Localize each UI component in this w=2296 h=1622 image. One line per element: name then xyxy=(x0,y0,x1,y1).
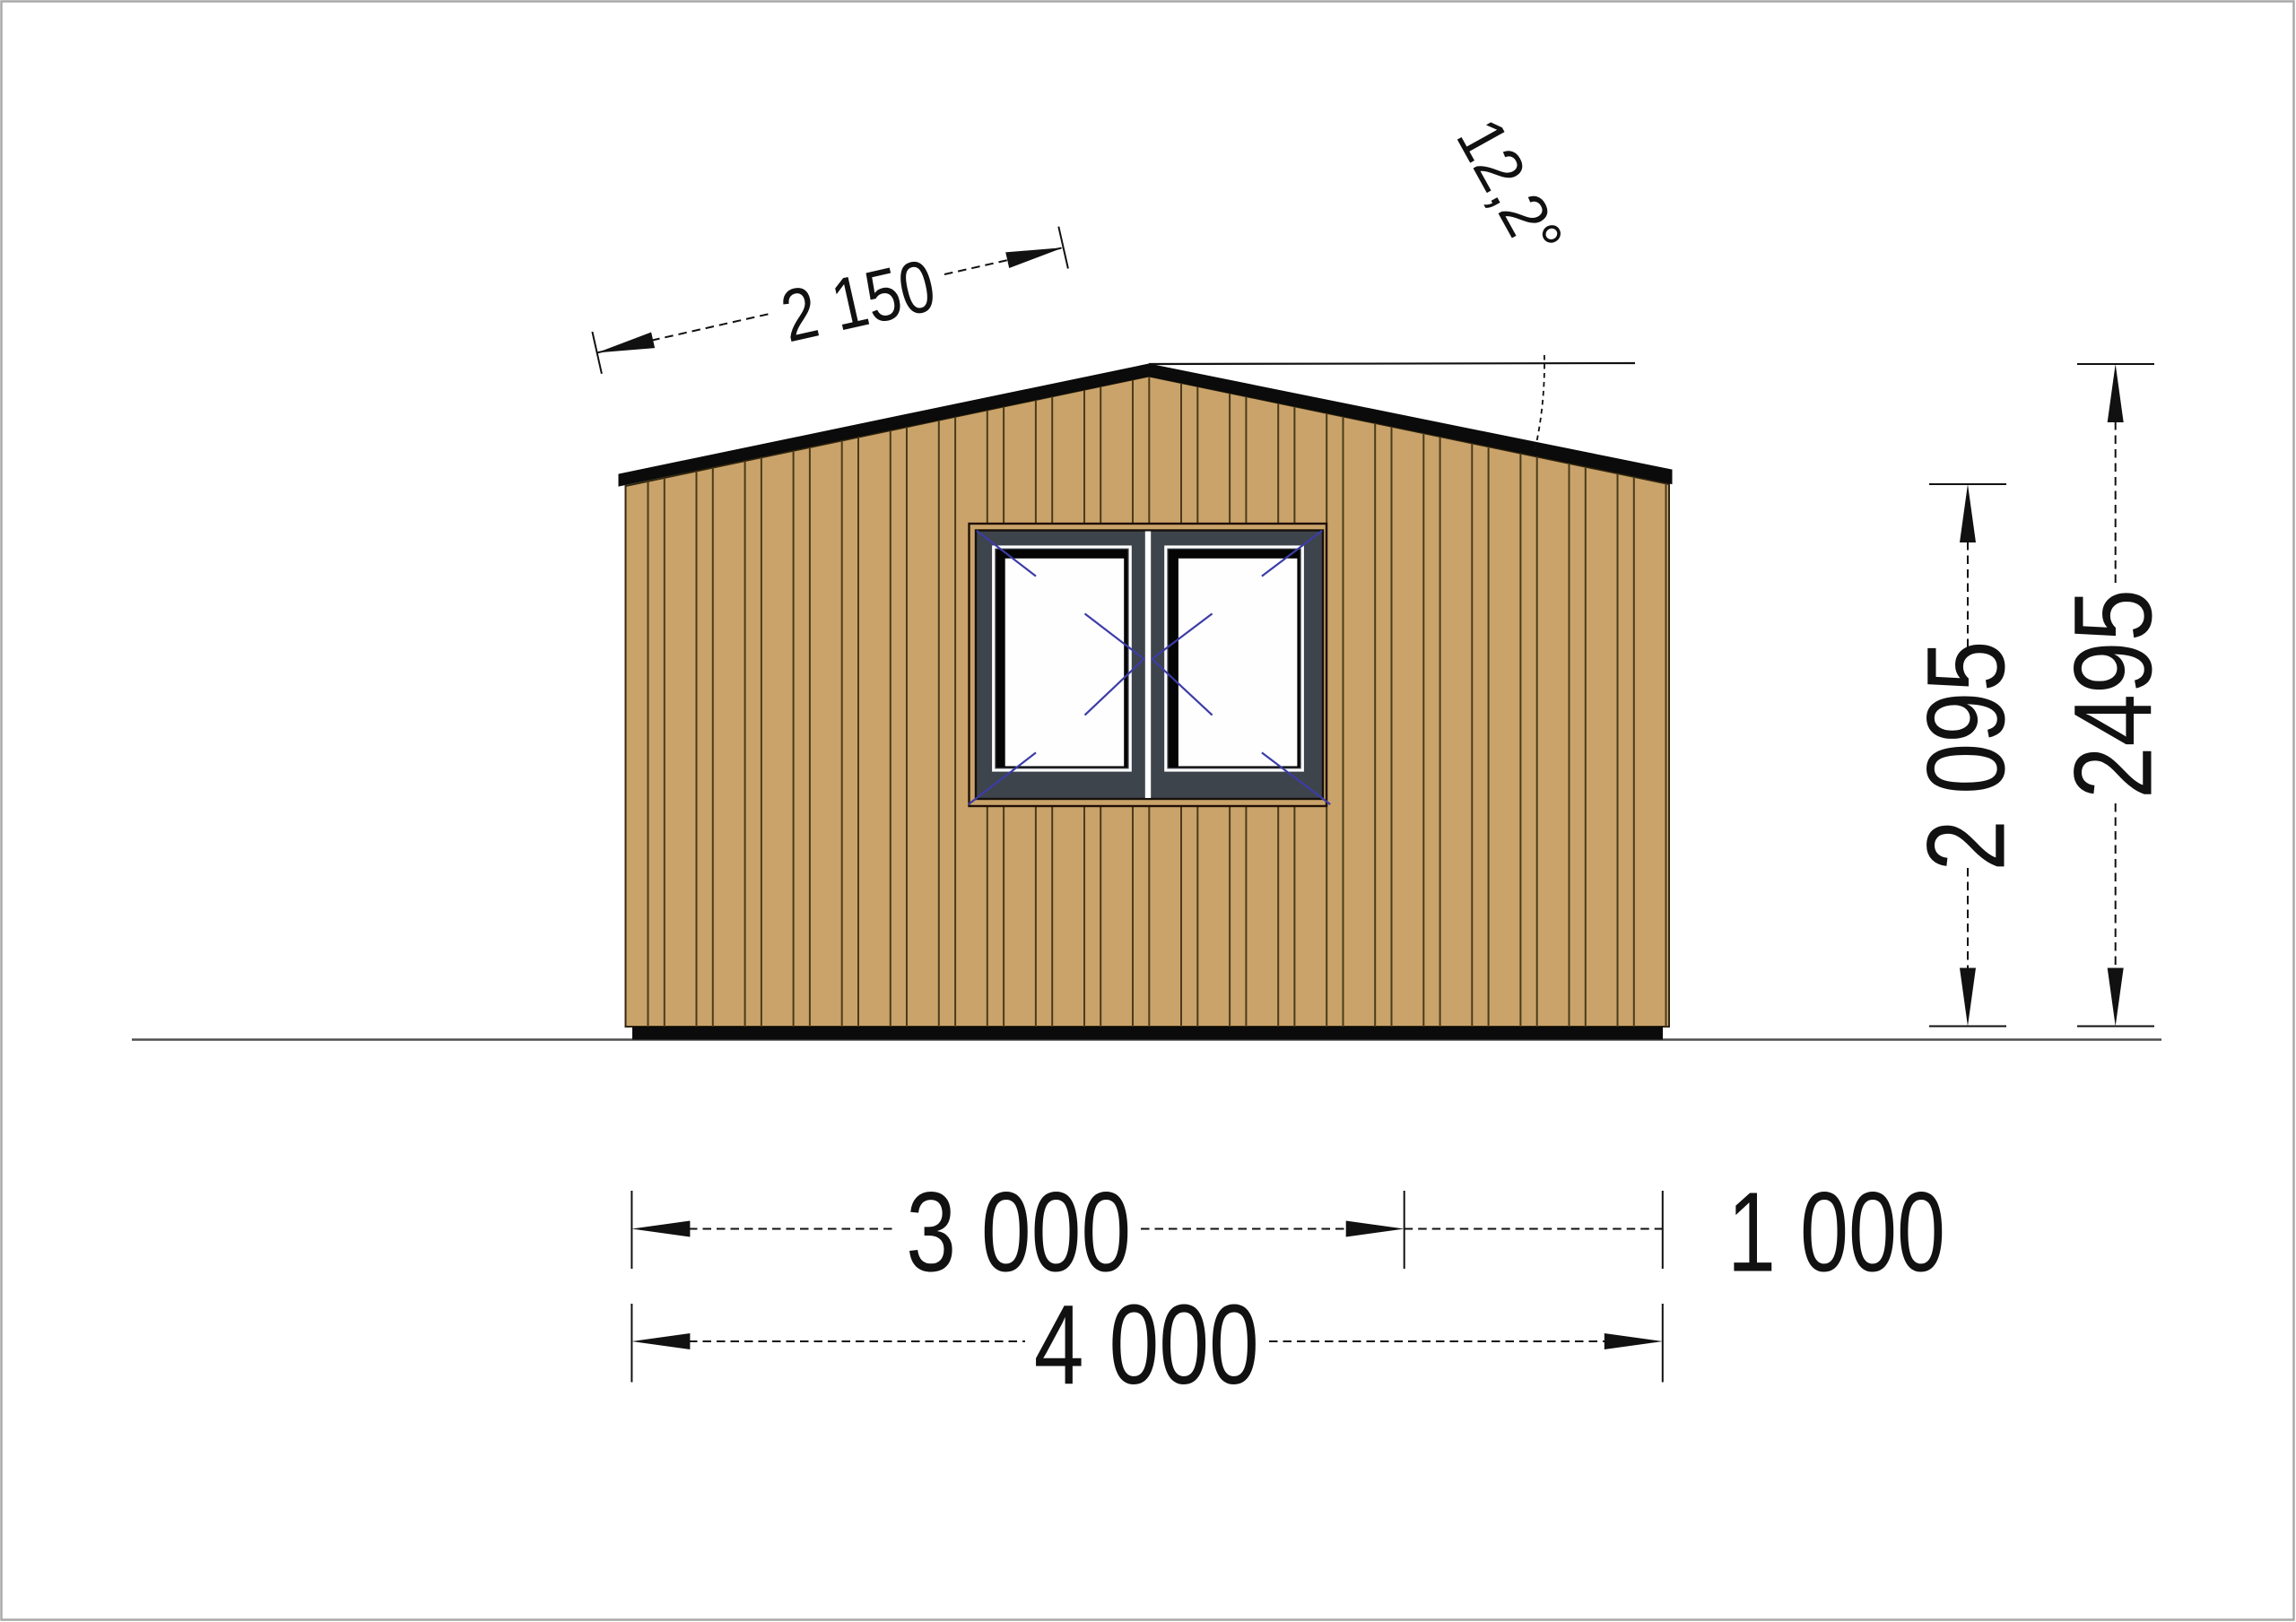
svg-text:1 000: 1 000 xyxy=(1727,1169,1945,1296)
svg-text:2 095: 2 095 xyxy=(1906,641,2029,872)
svg-text:4 000: 4 000 xyxy=(1034,1281,1259,1408)
svg-text:3 000: 3 000 xyxy=(906,1169,1131,1296)
svg-text:2495: 2495 xyxy=(2053,589,2176,799)
